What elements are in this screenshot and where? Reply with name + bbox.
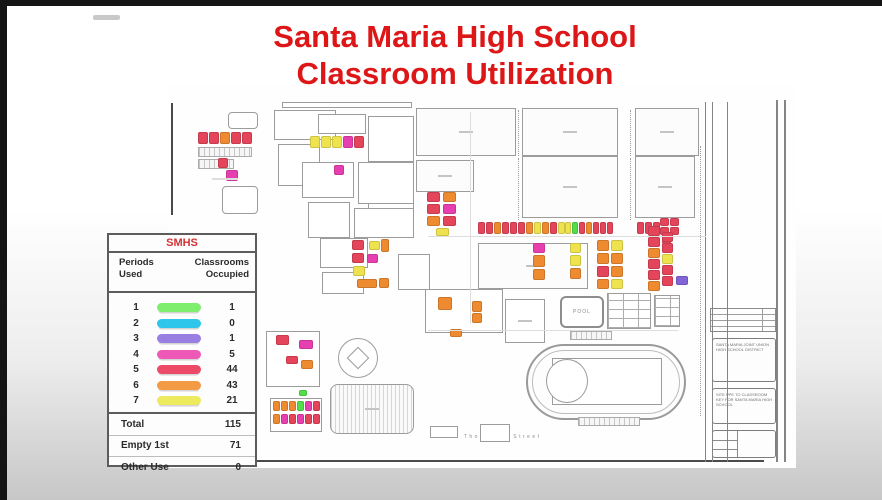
map-building-label-dash [365, 408, 379, 410]
map-room-block [570, 243, 581, 253]
map-building [546, 359, 588, 403]
map-building [607, 293, 651, 329]
map-building [398, 254, 430, 290]
map-building [330, 384, 414, 434]
map-room-block [597, 240, 609, 251]
legend-color-swatch [157, 303, 201, 312]
map-building [425, 289, 503, 333]
legend-count: 44 [221, 364, 243, 375]
map-building [228, 112, 258, 129]
map-building-label-dash [438, 175, 452, 177]
map-room-block [593, 222, 599, 234]
legend-period-label: 4 [129, 349, 143, 360]
map-building [198, 159, 234, 169]
titleblock-stamp-divider [737, 431, 738, 457]
legend-row: 721 [109, 393, 255, 409]
map-building-label-dash [518, 320, 532, 322]
map-line [712, 102, 713, 462]
map-room-block [310, 136, 320, 148]
legend-period-label: 6 [129, 380, 143, 391]
legend-summary-value: 115 [225, 419, 241, 430]
map-room-block [313, 401, 320, 411]
map-room-block [281, 401, 288, 411]
map-room-block [676, 276, 688, 285]
map-room-block [297, 401, 304, 411]
map-room-block [494, 222, 501, 234]
legend-count: 43 [221, 380, 243, 391]
map-building [416, 160, 474, 192]
map-room-block [534, 222, 541, 234]
map-room-block [550, 222, 557, 234]
map-building [480, 424, 510, 442]
map-room-block [502, 222, 509, 234]
legend-color-swatch [157, 381, 201, 390]
map-room-block [301, 360, 313, 369]
map-room-block [648, 270, 660, 280]
map-room-block [611, 253, 623, 264]
map-room-block [354, 136, 364, 148]
legend-col-periods: Periods Used [119, 257, 154, 291]
map-line [518, 110, 520, 156]
map-building-label-dash [563, 186, 577, 188]
map-building [222, 186, 258, 214]
map-room-block [220, 132, 230, 144]
map-room-block [586, 222, 592, 234]
map-room-block [670, 218, 679, 226]
map-building [654, 295, 680, 327]
map-room-block [648, 226, 660, 236]
map-room-block [518, 222, 525, 234]
map-room-block [334, 165, 344, 175]
map-room-block [597, 253, 609, 264]
map-building-label-dash [563, 131, 577, 133]
legend-row: 643 [109, 378, 255, 394]
map-building [318, 114, 366, 134]
map-room-block [533, 255, 545, 267]
titleblock-district-box: Santa Maria Joint Union High School Dist… [712, 338, 776, 382]
legend-period-label: 2 [129, 318, 143, 329]
map-room-block [299, 340, 313, 349]
map-room-block [648, 248, 660, 258]
legend-summary-row: Total115 [109, 414, 255, 435]
legend-column-headers: Periods Used Classrooms Occupied [109, 253, 255, 293]
map-line [212, 178, 238, 180]
map-room-block [443, 216, 456, 226]
map-room-block [381, 239, 389, 252]
watermark-smudge [93, 15, 120, 20]
map-building [505, 299, 545, 343]
pool-label: POOL [573, 309, 591, 315]
titleblock-revision-table [710, 308, 776, 332]
map-room-block [273, 401, 280, 411]
legend-count: 1 [221, 302, 243, 313]
titleblock-stamp-box [712, 430, 776, 458]
map-room-block [281, 414, 288, 424]
map-room-block [570, 255, 581, 266]
map-room-block [286, 356, 298, 364]
map-line [428, 330, 678, 331]
map-room-block [478, 222, 485, 234]
legend-count: 21 [221, 395, 243, 406]
legend-row: 45 [109, 347, 255, 363]
map-room-block [526, 222, 533, 234]
map-building [522, 156, 618, 218]
map-building [308, 202, 350, 238]
map-room-block [427, 192, 440, 202]
map-room-block [662, 254, 673, 264]
legend-row: 31 [109, 331, 255, 347]
map-room-block [343, 136, 353, 148]
legend-col-classrooms: Classrooms Occupied [195, 257, 249, 291]
pool-building: POOL [560, 296, 604, 328]
map-room-block [218, 158, 228, 168]
map-room-block [367, 254, 378, 263]
map-room-block [369, 241, 380, 250]
map-line [470, 112, 471, 324]
map-room-block [352, 240, 364, 250]
map-building [578, 417, 640, 426]
map-room-block [533, 269, 545, 280]
map-line [518, 158, 520, 220]
map-room-block [572, 222, 578, 234]
legend-row: 20 [109, 316, 255, 332]
slide-title-line1: Santa Maria High School [205, 18, 705, 55]
map-room-block [443, 204, 456, 214]
map-room-block [558, 222, 565, 234]
map-room-block [660, 218, 669, 226]
map-room-block [597, 279, 609, 289]
map-room-block [607, 222, 613, 234]
map-room-block [600, 222, 606, 234]
map-room-block [438, 297, 452, 310]
map-room-block [648, 237, 660, 247]
map-room-block [611, 279, 623, 289]
slide-title: Santa Maria High School Classroom Utiliz… [205, 18, 705, 92]
campus-site-map: Santa Maria Joint Union High School Dist… [168, 86, 796, 468]
map-building [430, 426, 458, 438]
map-room-block [231, 132, 241, 144]
map-line [700, 146, 702, 416]
map-room-block [427, 204, 440, 214]
map-line [776, 100, 778, 462]
map-building [358, 162, 414, 204]
titleblock-sheet-title-box: Site PPE to Classroom Key for Santa Mari… [712, 388, 776, 424]
map-room-block [352, 253, 364, 263]
legend-summary-row: Other Use0 [109, 456, 255, 478]
map-room-block [321, 136, 331, 148]
legend-row: 544 [109, 362, 255, 378]
map-room-block [273, 414, 280, 424]
map-room-block [289, 401, 296, 411]
map-building-label-dash [660, 131, 674, 133]
letterbox-top-bar [0, 0, 882, 6]
map-room-block [565, 222, 571, 234]
map-building [635, 156, 695, 218]
map-room-block [209, 132, 219, 144]
legend-summary-value: 0 [235, 462, 241, 473]
legend-color-swatch [157, 334, 201, 343]
utilization-legend-table: SMHS Periods Used Classrooms Occupied 11… [107, 233, 257, 467]
legend-count: 0 [221, 318, 243, 329]
map-building [416, 108, 516, 156]
map-room-block [611, 266, 623, 277]
map-room-block [289, 414, 296, 424]
map-room-block [542, 222, 549, 234]
map-building [368, 116, 414, 162]
map-room-block [305, 414, 312, 424]
map-room-block [637, 222, 644, 234]
legend-school-name: SMHS [109, 235, 255, 253]
map-room-block [198, 132, 208, 144]
legend-period-label: 1 [129, 302, 143, 313]
map-line [168, 460, 764, 462]
map-room-block [313, 414, 320, 424]
legend-count: 5 [221, 349, 243, 360]
map-building [522, 108, 618, 156]
legend-count: 1 [221, 333, 243, 344]
map-room-block [297, 414, 304, 424]
legend-color-swatch [157, 350, 201, 359]
legend-summary-label: Other Use [121, 462, 169, 473]
map-room-block [662, 265, 673, 275]
map-room-block [510, 222, 517, 234]
map-line [428, 236, 706, 237]
legend-period-label: 7 [129, 395, 143, 406]
map-room-block [648, 281, 660, 291]
legend-row: 11 [109, 300, 255, 316]
map-room-block [427, 216, 440, 226]
map-building [198, 147, 252, 157]
map-line [171, 103, 173, 215]
map-room-block [443, 192, 456, 202]
map-room-block [662, 232, 673, 242]
map-room-block [276, 335, 289, 345]
map-room-block [662, 243, 673, 253]
map-building [570, 331, 612, 340]
map-room-block [242, 132, 252, 144]
map-building [354, 208, 414, 238]
map-room-block [305, 401, 312, 411]
titleblock-stamp-line [713, 440, 737, 441]
map-room-block [357, 279, 377, 288]
map-room-block [299, 390, 307, 396]
map-room-block [353, 266, 365, 276]
map-room-block [533, 243, 545, 253]
map-building [282, 102, 412, 108]
legend-period-label: 5 [129, 364, 143, 375]
legend-color-swatch [157, 396, 201, 405]
map-building-label-dash [658, 186, 672, 188]
legend-rows: 11203145544643721 [109, 293, 255, 412]
video-frame: { "slide": { "title_line1": "Santa Maria… [0, 0, 882, 500]
letterbox-left-bar [0, 0, 7, 500]
legend-summary-label: Total [121, 419, 144, 430]
map-line [630, 158, 632, 220]
map-line [727, 102, 728, 462]
legend-color-swatch [157, 365, 201, 374]
map-room-block [570, 268, 581, 279]
legend-color-swatch [157, 319, 201, 328]
legend-summary-row: Empty 1st71 [109, 435, 255, 457]
map-room-block [597, 266, 609, 277]
map-room-block [662, 276, 673, 286]
legend-period-label: 3 [129, 333, 143, 344]
map-room-block [472, 301, 482, 312]
map-room-block [436, 228, 449, 236]
map-room-block [579, 222, 585, 234]
map-room-block [472, 313, 482, 323]
titleblock-stamp-line [713, 449, 737, 450]
legend-summary: Total115Empty 1st71Other Use0 [109, 412, 255, 478]
map-building [302, 162, 354, 198]
map-room-block [379, 278, 389, 288]
map-line [784, 100, 786, 462]
map-line [630, 110, 632, 156]
map-building [635, 108, 699, 156]
map-room-block [486, 222, 493, 234]
map-room-block [611, 240, 623, 251]
map-line [705, 102, 706, 462]
legend-summary-label: Empty 1st [121, 440, 169, 451]
map-room-block [648, 259, 660, 269]
legend-summary-value: 71 [230, 440, 241, 451]
map-room-block [332, 136, 342, 148]
